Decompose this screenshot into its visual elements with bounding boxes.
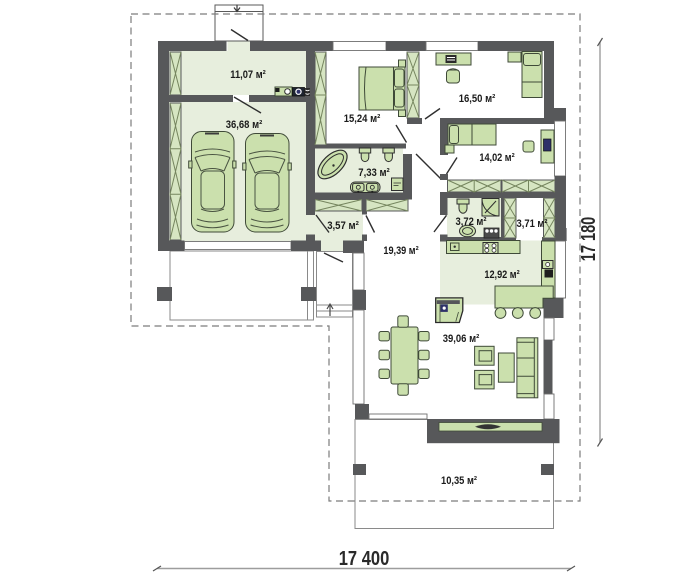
svg-text:16,50 м²: 16,50 м² <box>459 93 496 105</box>
svg-text:17 400: 17 400 <box>339 548 390 570</box>
svg-text:10,35 м²: 10,35 м² <box>441 475 477 487</box>
svg-text:12,92 м²: 12,92 м² <box>484 269 520 281</box>
svg-text:19,39 м²: 19,39 м² <box>383 245 419 257</box>
svg-text:39,06 м²: 39,06 м² <box>443 333 480 345</box>
svg-text:3,57 м²: 3,57 м² <box>327 220 359 232</box>
svg-text:7,33 м²: 7,33 м² <box>358 167 390 179</box>
svg-text:11,07 м²: 11,07 м² <box>230 69 266 81</box>
svg-text:17 180: 17 180 <box>578 217 600 262</box>
svg-text:14,02 м²: 14,02 м² <box>479 152 515 164</box>
svg-text:36,68 м²: 36,68 м² <box>226 119 263 131</box>
svg-text:3,72 м²: 3,72 м² <box>456 216 487 228</box>
svg-text:3,71 м²: 3,71 м² <box>517 218 548 230</box>
svg-text:15,24 м²: 15,24 м² <box>344 113 381 125</box>
